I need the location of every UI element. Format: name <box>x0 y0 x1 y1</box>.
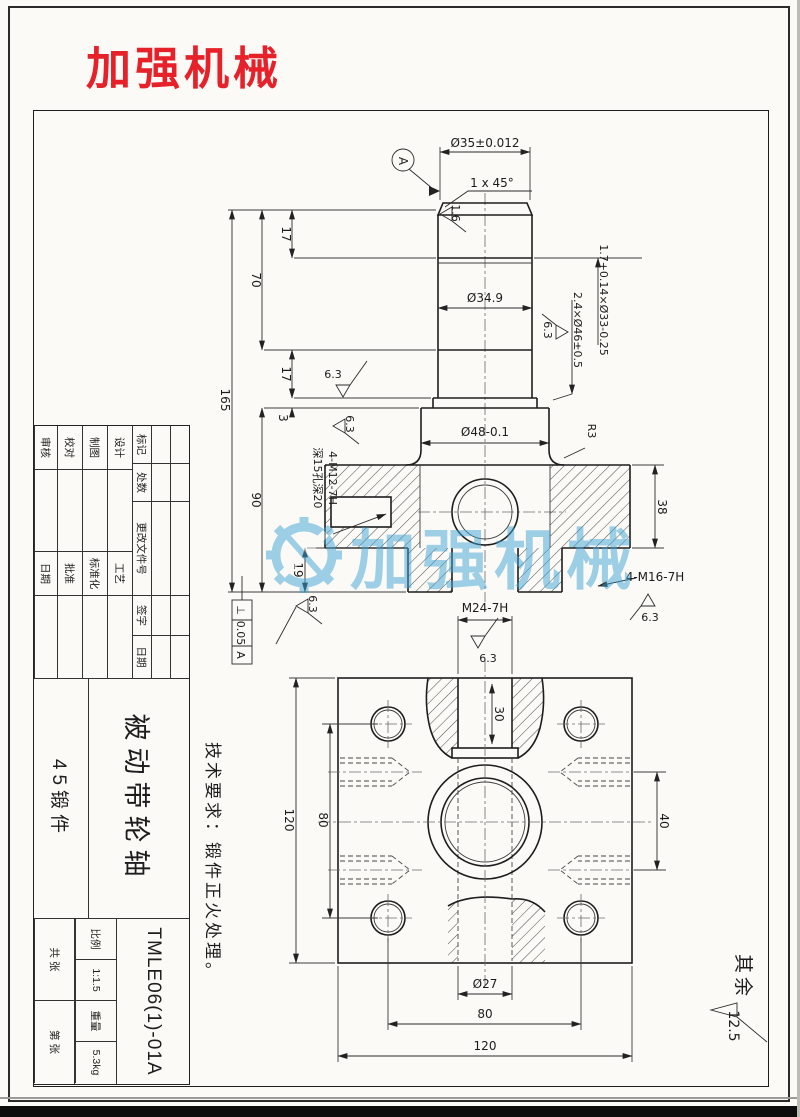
dim-17a: 17 <box>279 226 293 241</box>
weight-label: 重量 <box>75 1001 116 1042</box>
dim-dia35: Ø35±0.012 <box>450 136 519 150</box>
role-row-audit: 审核 日期 <box>34 426 57 678</box>
technical-note-wrap: 技术要求：锻件正火处理。 <box>198 742 232 1042</box>
dim-70: 70 <box>249 272 263 287</box>
dim-chamfer: 1 x 45° <box>470 176 514 190</box>
title-block: 标记 处数 更改文件号 签字 日期 设计 工艺 制图 标准化 校对 批准 <box>33 425 190 1085</box>
dim-80-bottom: 80 <box>477 1007 492 1021</box>
drawing-sheet: 加强机械 <box>0 0 800 1117</box>
dim-120-bottom: 120 <box>474 1039 497 1053</box>
role-approve: 批准 <box>57 552 82 596</box>
title-block-name-area: 被动带轮轴 45锻件 <box>34 678 189 918</box>
rev-header-count: 处数 <box>132 464 151 502</box>
tol-value: 0.05 <box>234 621 247 646</box>
dim-m16: 4-M16-7H <box>626 570 685 584</box>
role-standard: 标准化 <box>82 552 107 596</box>
svg-text:6.3: 6.3 <box>479 652 497 665</box>
title-block-wrap: 标记 处数 更改文件号 签字 日期 设计 工艺 制图 标准化 校对 批准 <box>33 425 190 1085</box>
dim-m24: M24-7H <box>462 601 509 615</box>
sheet-total: 共 张 <box>34 919 74 1001</box>
bottom-view-dimensions: M24-7H 6.3 30 120 80 40 <box>282 601 671 1062</box>
role-row-design: 设计 工艺 <box>107 426 132 678</box>
role-draft: 制图 <box>82 426 107 470</box>
bottom-view <box>318 660 652 985</box>
qiyu-value: 12.5 <box>725 1010 741 1041</box>
dim-38: 38 <box>655 499 669 514</box>
dim-r3: R3 <box>585 424 598 439</box>
sheet-row: 共 张 第 张 <box>34 919 75 1084</box>
qiyu-label: 其余 <box>732 954 754 1000</box>
revision-empty-row <box>170 426 189 678</box>
role-check: 校对 <box>57 426 82 470</box>
dim-90: 90 <box>249 492 263 507</box>
dim-165: 165 <box>218 389 232 412</box>
role-design: 设计 <box>107 426 132 470</box>
tol-datum: A <box>234 651 247 659</box>
dim-m12: 4-M12-7H <box>326 451 339 505</box>
dim-dia48: Ø48-0.1 <box>461 425 509 439</box>
dim-dia349: Ø34.9 <box>467 291 503 305</box>
revision-empty-row <box>151 426 170 678</box>
dim-groove-mid: 2.4×Ø46±0.5 <box>571 292 584 368</box>
dim-m12-depth: 深15孔深20 <box>311 448 324 509</box>
dim-80-left: 80 <box>316 812 330 827</box>
material: 45锻件 <box>34 679 89 918</box>
dim-40: 40 <box>657 813 671 828</box>
title-block-number-area: TMLE06(1)-01A 比例 1:1.5 重量 5.3kg 共 张 第 张 <box>34 918 189 1084</box>
rev-header-date: 日期 <box>132 636 151 678</box>
scale-label: 比例 <box>75 919 116 960</box>
technical-note: 技术要求：锻件正火处理。 <box>198 742 232 1042</box>
rev-header-sign: 签字 <box>132 596 151 636</box>
scale-value: 1:1.5 <box>75 960 116 1001</box>
tolerance-frame: ⊥ 0.05 A <box>232 600 252 664</box>
dim-3: 3 <box>276 414 290 422</box>
rev-header-mark: 标记 <box>132 426 151 464</box>
revision-header-row: 标记 处数 更改文件号 签字 日期 <box>132 426 151 678</box>
sheet-number: 第 张 <box>34 1001 74 1083</box>
svg-text:6.3: 6.3 <box>324 368 342 381</box>
front-view <box>325 193 630 602</box>
tol-symbol: ⊥ <box>234 605 247 615</box>
weight-value: 5.3kg <box>75 1042 116 1083</box>
svg-text:6.3: 6.3 <box>306 595 319 613</box>
svg-text:6.3: 6.3 <box>343 415 356 433</box>
corner-holes <box>364 700 605 942</box>
scale-weight-row: 比例 1:1.5 重量 5.3kg <box>75 919 117 1084</box>
rev-header-docno: 更改文件号 <box>132 502 151 596</box>
dim-17b: 17 <box>279 366 293 381</box>
role-process: 工艺 <box>107 552 132 596</box>
title-block-revision-area: 标记 处数 更改文件号 签字 日期 设计 工艺 制图 标准化 校对 批准 <box>34 426 189 678</box>
dim-120-left: 120 <box>282 809 296 832</box>
finish-mark-m24 <box>471 618 498 648</box>
part-name: 被动带轮轴 <box>89 679 189 918</box>
role-row-draft: 制图 标准化 <box>82 426 107 678</box>
svg-text:6.3: 6.3 <box>641 611 659 624</box>
datum-triangle <box>429 186 440 196</box>
role-row-check: 校对 批准 <box>57 426 82 678</box>
dim-dia27: Ø27 <box>473 977 498 991</box>
role-audit: 审核 <box>34 426 57 470</box>
dim-30: 30 <box>492 706 506 721</box>
svg-text:1.6: 1.6 <box>449 204 462 222</box>
role-date: 日期 <box>34 552 57 596</box>
drawing-number: TMLE06(1)-01A <box>117 919 189 1084</box>
dim-19: 19 <box>291 562 305 577</box>
datum-a-label: A <box>396 157 410 166</box>
svg-text:6.3: 6.3 <box>541 321 554 339</box>
dim-groove-top: 1.7+0.14×Ø33-0.25 <box>597 244 610 356</box>
general-roughness-mark: 其余 12.5 <box>711 954 767 1042</box>
